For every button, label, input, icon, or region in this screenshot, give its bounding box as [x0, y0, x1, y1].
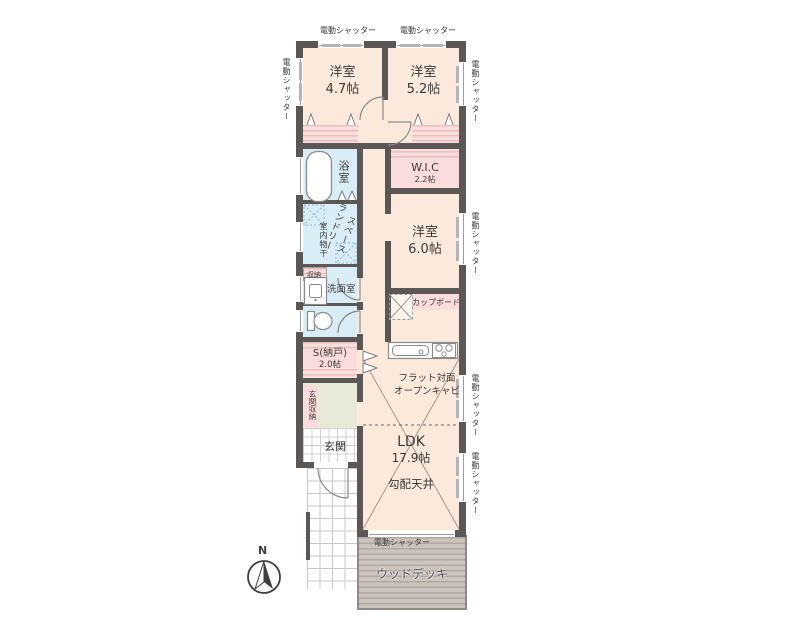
wall-toilet-bottom: [296, 337, 363, 342]
door-gap-washroom: [357, 278, 363, 302]
shutter-box: [299, 83, 302, 101]
shutter-label-right-bedroom60: 電動シャッター: [470, 212, 481, 275]
deck-sliding-door: [368, 530, 455, 537]
door-gap-storage-s: [357, 350, 363, 374]
wall-laundry-bottom: [296, 264, 363, 267]
shutter-label-left: 電動シャッター: [281, 58, 292, 121]
cupboard-label: カップボード: [413, 294, 459, 310]
window-right-bedroom60: [459, 213, 466, 265]
window-left-laundry: [296, 222, 303, 252]
shutter-box: [456, 400, 459, 418]
wall-wic-bottom: [385, 188, 466, 194]
shutter-label-right-ldk-1: 電動シャッター: [470, 374, 481, 437]
bedroom52-label: 洋室 5.2帖: [388, 62, 459, 102]
wall-corridor-left: [357, 143, 363, 383]
refrigerator-space: [389, 294, 413, 320]
storage-s-label: S(納戸) 2.0帖: [303, 348, 357, 370]
bedroom60-label: 洋室 6.0帖: [391, 222, 459, 262]
indoor-drying-label: 室内物干: [318, 222, 329, 258]
wic-label: W.I.C 2.2帖: [391, 160, 459, 186]
window-left-washroom: [296, 276, 303, 302]
door-gap-entrance: [314, 462, 348, 468]
entrance-storage-label: 玄関収納: [307, 390, 318, 420]
door-gap-toilet: [357, 310, 363, 334]
washroom-label: 洗面室: [327, 281, 356, 295]
wall-storage-s-bottom: [296, 378, 363, 383]
shutter-box: [299, 62, 302, 80]
porch-tile: [307, 468, 357, 589]
wall-bath-bottom: [296, 200, 363, 204]
shutter-box: [423, 44, 443, 47]
shutter-box: [343, 44, 361, 47]
door-gap-hall-ldk: [357, 402, 363, 426]
closet-bedroom52: [412, 125, 459, 143]
compass-n-label: N: [258, 544, 267, 557]
wood-deck-label: ウッドデッキ: [357, 565, 467, 581]
toilet-room: [303, 306, 357, 337]
floor-plan: 電動シャッター 電動シャッター 電動シャッター 電動シャッター 電動シャッター …: [0, 0, 800, 640]
shutter-box: [400, 44, 420, 47]
bedroom47-label: 洋室 4.7帖: [303, 62, 382, 102]
kitchen-cabinet-label: フラット対面 オープンキャビ: [385, 372, 469, 398]
storage-s-shelf-bottom: [303, 369, 357, 378]
porch-side-wall: [306, 512, 310, 560]
bath-label: 浴室: [335, 160, 351, 184]
shutter-box: [322, 44, 340, 47]
small-closet-label: 収納: [307, 270, 321, 280]
wall-washroom-bottom: [296, 303, 363, 306]
wall-bedrooms-bottom: [296, 143, 466, 149]
window-right-ldk-2: [459, 453, 466, 502]
shutter-label-right-bedroom52: 電動シャッター: [470, 60, 481, 123]
shutter-label-deck: 電動シャッター: [374, 537, 430, 548]
window-left-bath: [296, 157, 303, 195]
sloped-ceiling-label: 勾配天井: [363, 477, 459, 491]
closet-bedroom47: [303, 125, 358, 143]
window-left-toilet: [296, 310, 303, 332]
shutter-label-top-right: 電動シャッター: [400, 25, 456, 36]
entrance-label: 玄関: [324, 438, 346, 454]
ldk-label: LDK 17.9帖: [363, 432, 459, 468]
shutter-label-right-ldk-2: 電動シャッター: [470, 452, 481, 515]
shutter-label-top-left: 電動シャッター: [320, 25, 376, 36]
window-right-bedroom52: [459, 62, 466, 106]
